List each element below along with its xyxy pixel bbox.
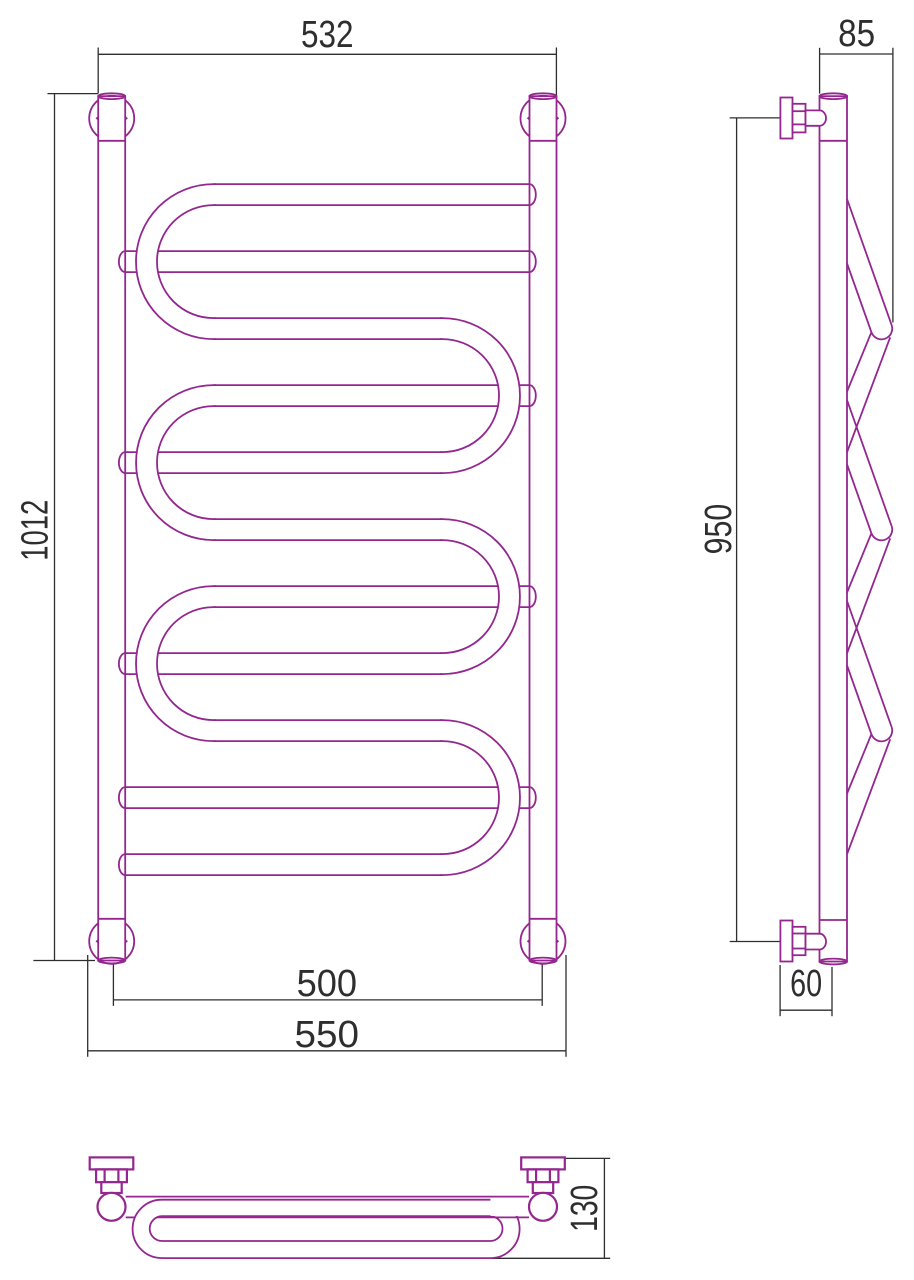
svg-text:1012: 1012 [14,500,56,561]
svg-text:60: 60 [790,963,822,1005]
svg-text:550: 550 [295,1014,360,1056]
svg-text:950: 950 [698,504,740,555]
svg-text:85: 85 [838,13,875,55]
svg-text:500: 500 [297,963,357,1005]
svg-text:532: 532 [301,14,354,56]
svg-text:130: 130 [564,1185,606,1232]
